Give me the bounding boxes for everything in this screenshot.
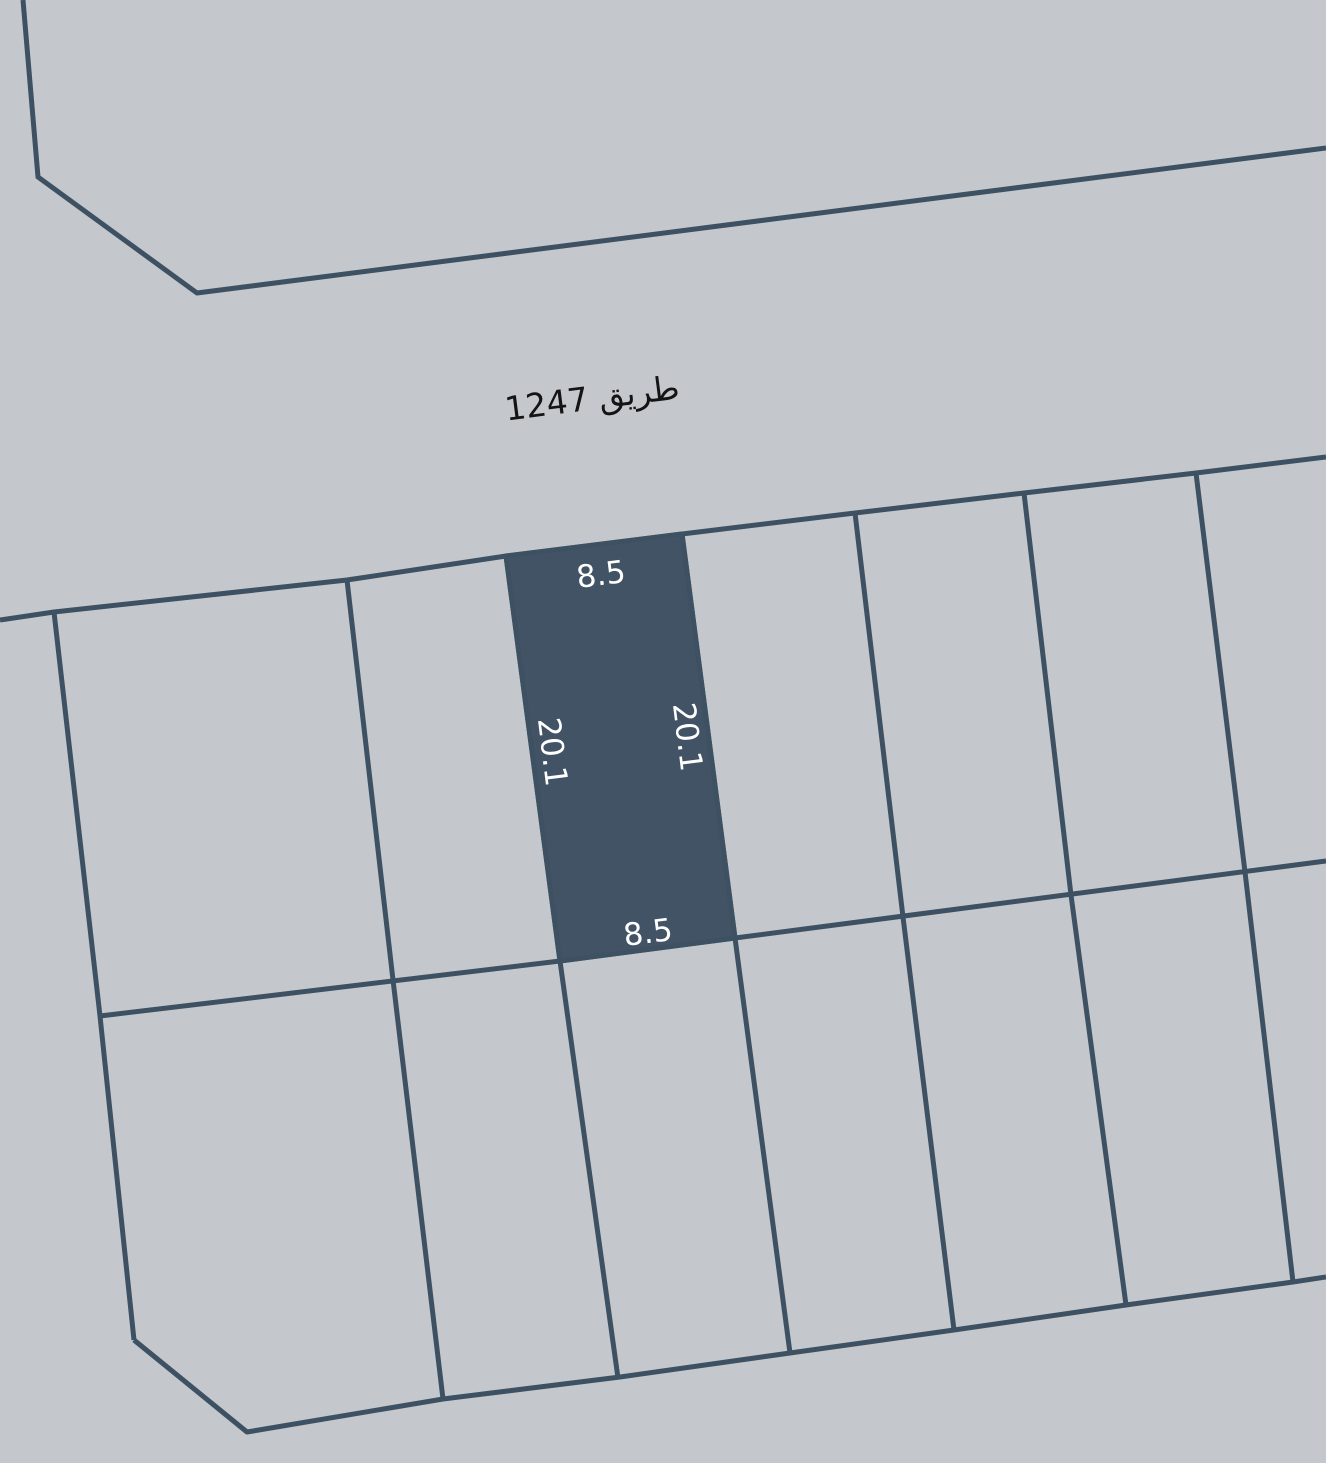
plot-bottom-dimension-label: 8.5 — [621, 912, 674, 954]
cadastral-map: طريق 1247 8.5 20.1 20.1 8.5 — [0, 0, 1326, 1463]
plot-top-dimension-label: 8.5 — [574, 554, 627, 596]
map-canvas: طريق 1247 8.5 20.1 20.1 8.5 — [0, 0, 1326, 1463]
